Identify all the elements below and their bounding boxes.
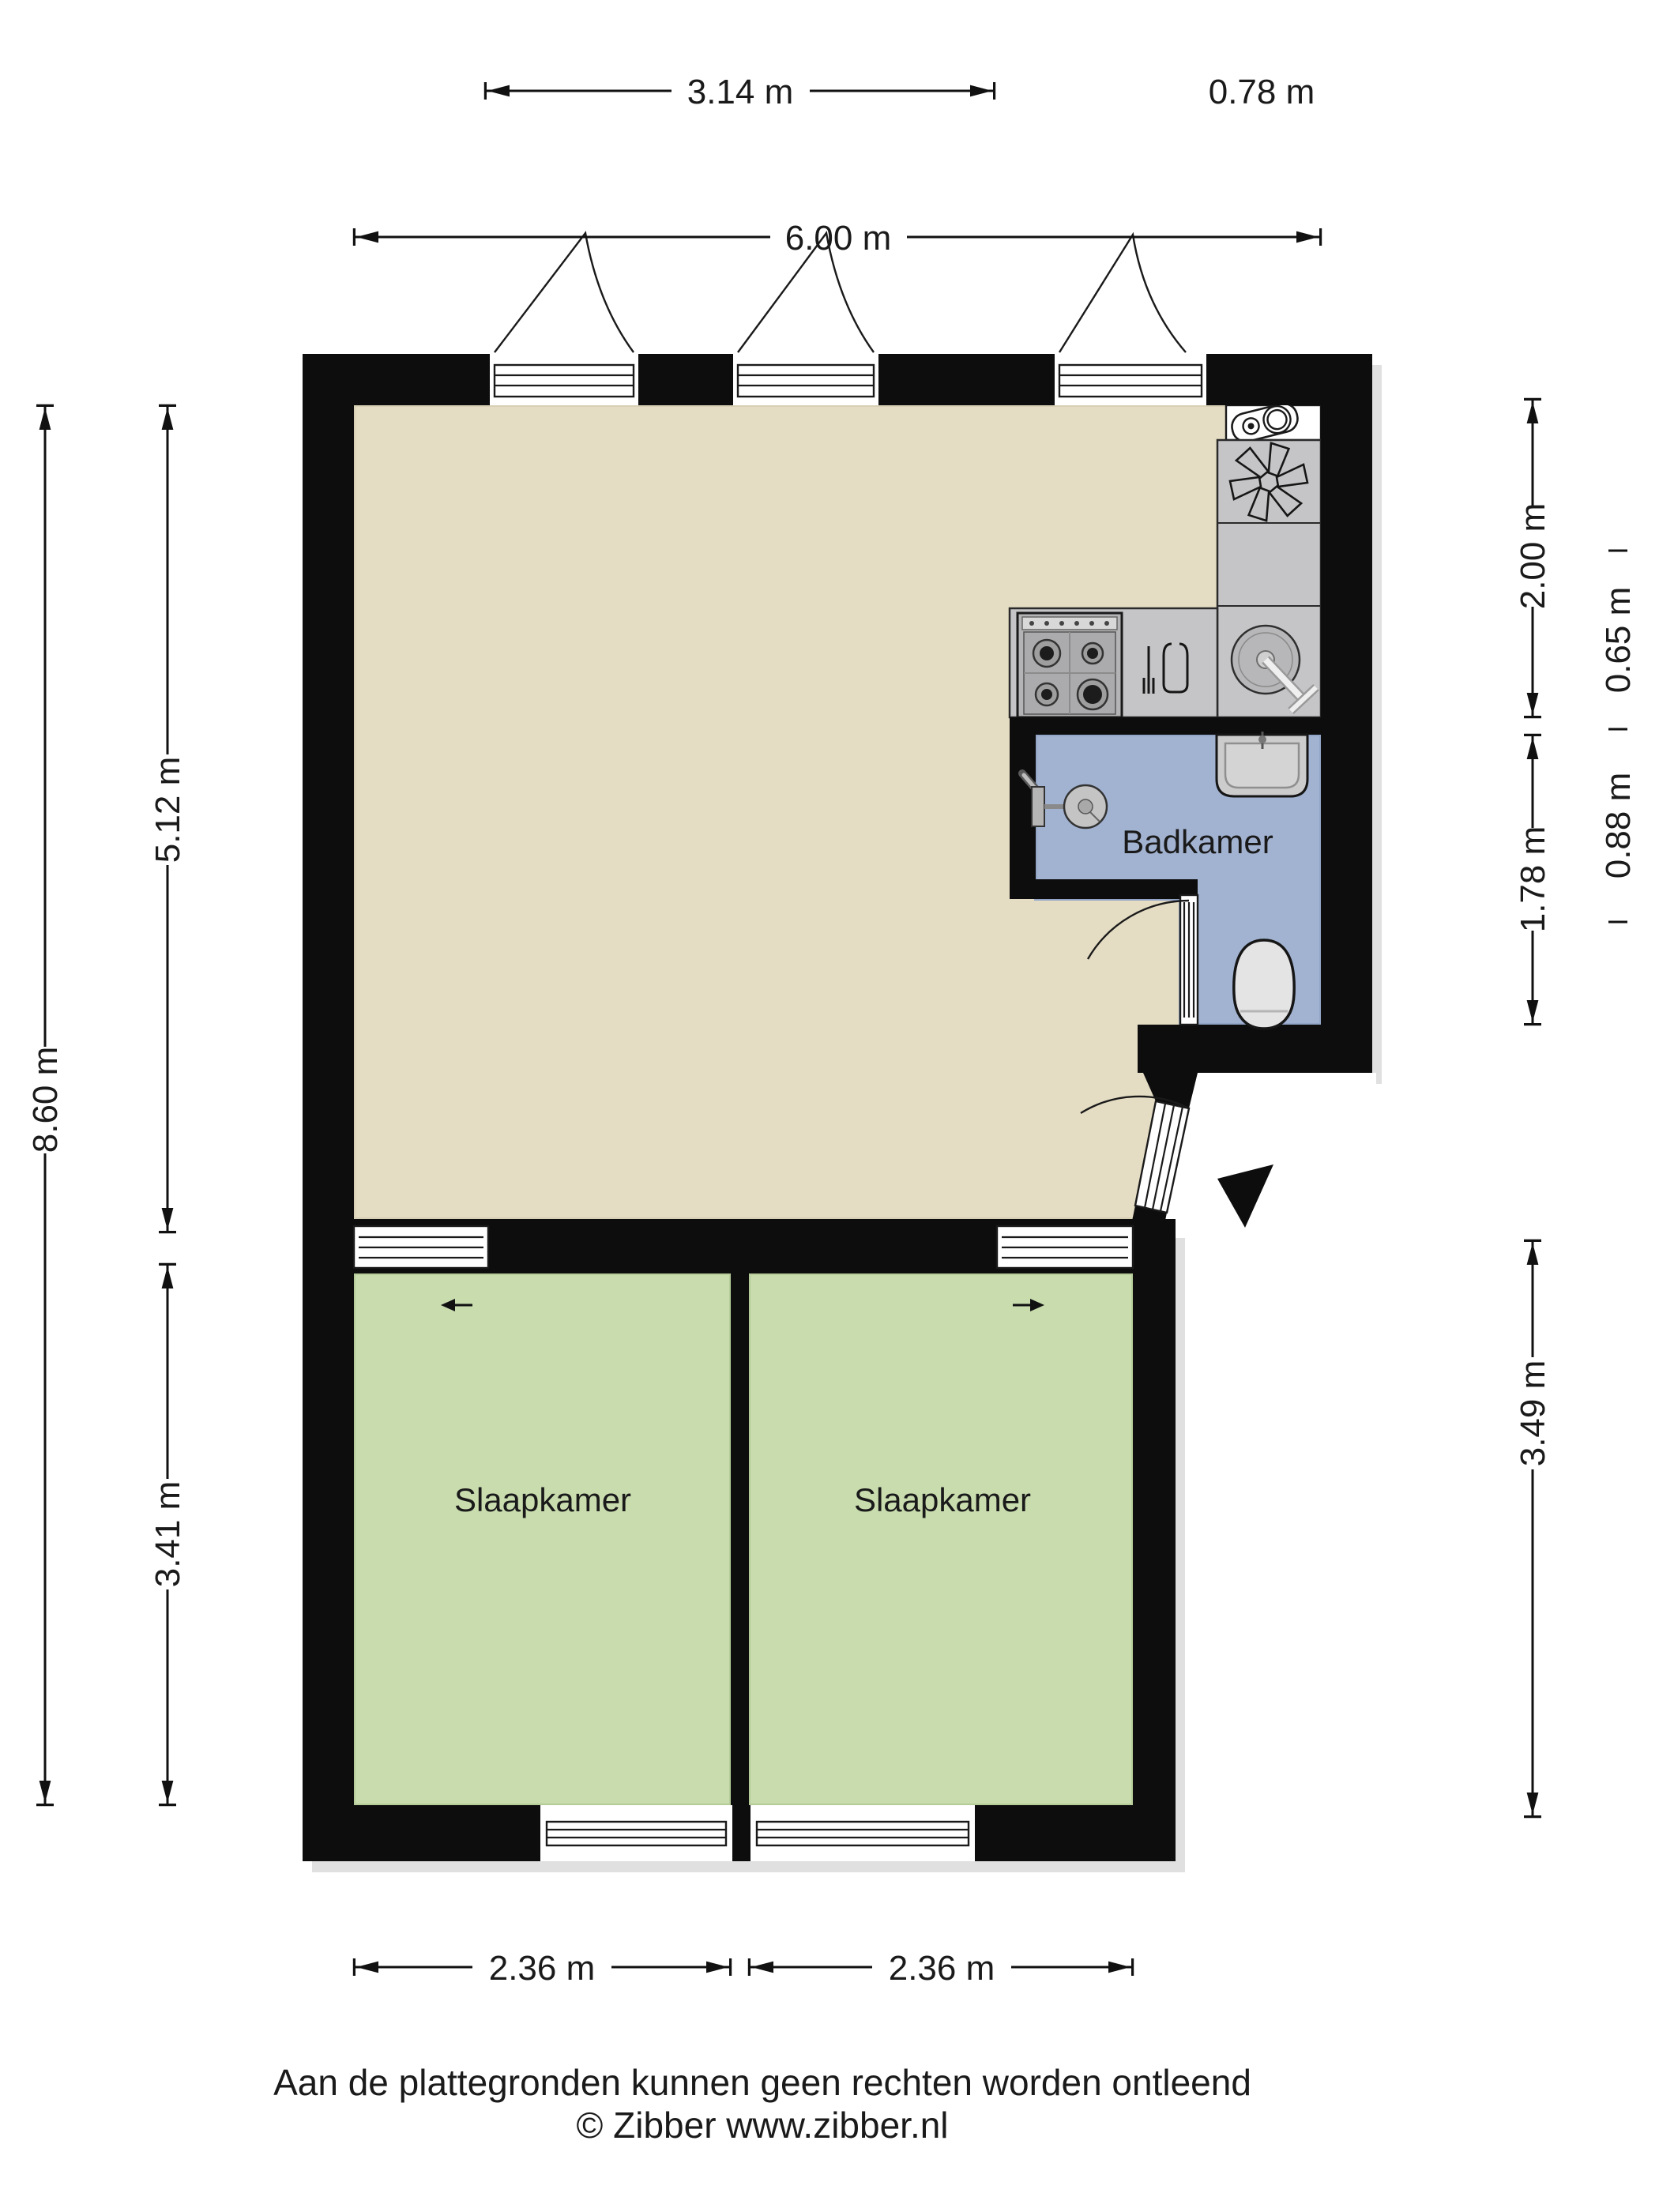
dimension-top-total: 6.00 m (354, 219, 1321, 258)
svg-text:0.78 m: 0.78 m (1209, 73, 1315, 111)
svg-text:0.88 m: 0.88 m (1599, 773, 1638, 879)
washbasin-icon (1217, 732, 1307, 796)
svg-text:2.00 m: 2.00 m (1514, 503, 1552, 610)
dimension-right-widths: 0.65 m 0.88 m (1599, 551, 1638, 922)
svg-text:3.49 m: 3.49 m (1514, 1360, 1552, 1467)
bedroom-right-label: Slaapkamer (854, 1481, 1031, 1518)
window-top-1 (490, 233, 638, 405)
svg-text:2.36 m: 2.36 m (889, 1949, 995, 1988)
bathroom-label: Badkamer (1122, 823, 1273, 860)
window-swing-icon (1059, 235, 1186, 352)
dimension-right-kitchen: 2.00 m (1514, 399, 1552, 717)
window-bottom-left (540, 1805, 732, 1861)
floorplan-svg: Badkamer Slaapkamer Slaapkamer 3.14 m 0.… (0, 0, 1659, 2212)
svg-text:3.41 m: 3.41 m (149, 1481, 187, 1588)
svg-text:5.12 m: 5.12 m (149, 757, 187, 863)
room-bedroom-right (749, 1273, 1133, 1805)
svg-text:8.60 m: 8.60 m (26, 1047, 65, 1153)
dimension-left-total: 8.60 m (26, 405, 65, 1805)
toilet-icon (1234, 940, 1294, 1029)
dimension-bottom-right: 2.36 m (749, 1949, 1133, 1988)
svg-text:3.14 m: 3.14 m (687, 73, 794, 111)
dimension-left-bedroom: 3.41 m (149, 1264, 187, 1805)
dimension-left-living: 5.12 m (149, 405, 187, 1232)
svg-text:1.78 m: 1.78 m (1514, 826, 1552, 933)
window-bottom-right (750, 1805, 975, 1861)
svg-text:0.65 m: 0.65 m (1599, 587, 1638, 694)
dimension-top-inner: 3.14 m (485, 73, 995, 111)
floorplan-page: Badkamer Slaapkamer Slaapkamer 3.14 m 0.… (0, 0, 1659, 2212)
window-swing-icon (495, 233, 634, 352)
window-top-3 (1055, 235, 1206, 405)
room-bedroom-left (354, 1273, 731, 1805)
footer-disclaimer: Aan de plattegronden kunnen geen rechten… (273, 2062, 1251, 2103)
dimension-top-kitchen: 0.78 m (1209, 73, 1315, 111)
footer-copyright: © Zibber www.zibber.nl (576, 2105, 948, 2146)
dimension-right-bathroom: 1.78 m (1514, 735, 1552, 1025)
stove-icon (1018, 613, 1122, 717)
dimension-right-bedroom: 3.49 m (1514, 1240, 1552, 1817)
svg-text:6.00 m: 6.00 m (785, 219, 892, 258)
window-top-2 (733, 233, 878, 405)
bedroom-left-label: Slaapkamer (454, 1481, 631, 1518)
svg-text:2.36 m: 2.36 m (489, 1949, 596, 1988)
dimension-bottom-left: 2.36 m (354, 1949, 731, 1988)
